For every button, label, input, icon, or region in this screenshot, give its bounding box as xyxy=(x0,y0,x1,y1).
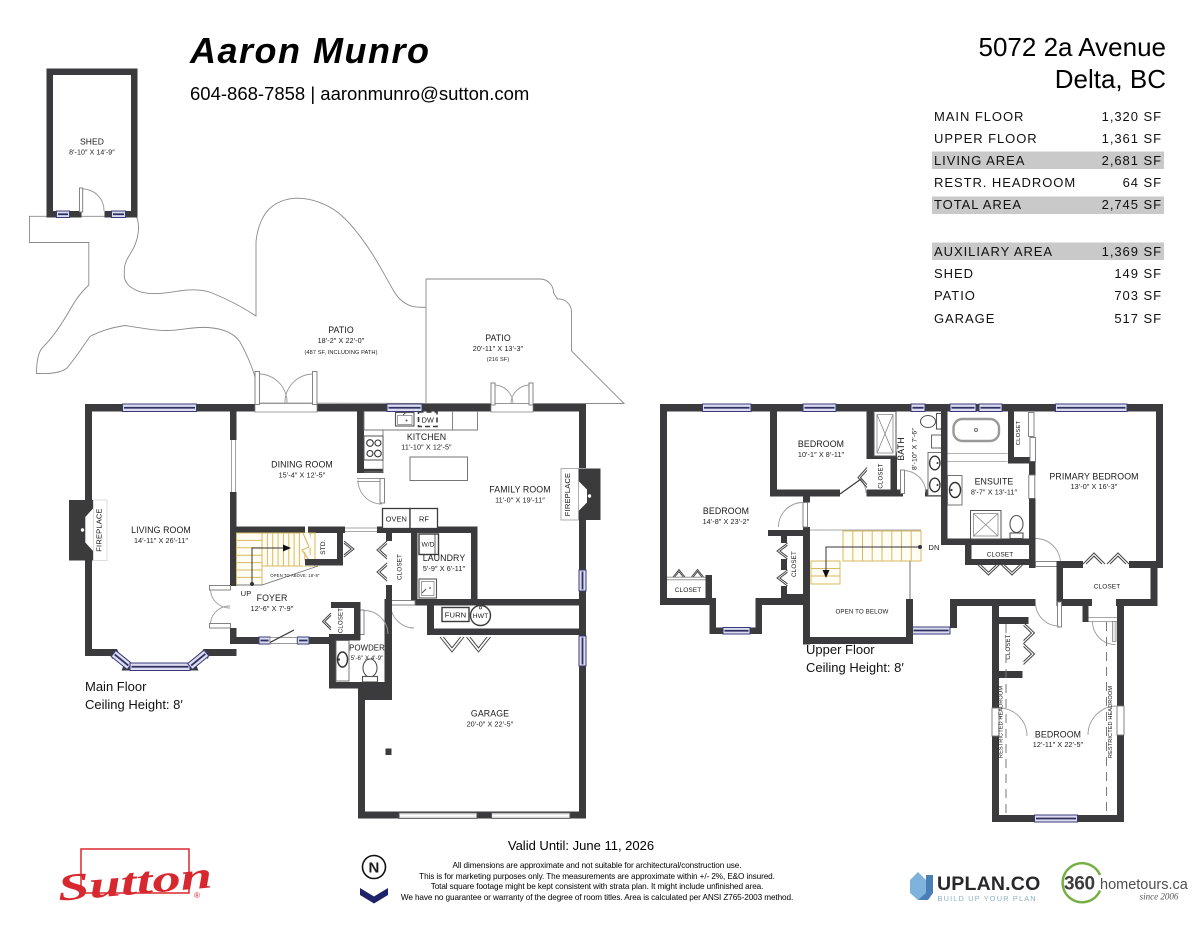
svg-text:12′-11″ X 22′-5″: 12′-11″ X 22′-5″ xyxy=(1033,740,1084,749)
svg-text:W/D: W/D xyxy=(421,542,434,549)
svg-text:CLOSET: CLOSET xyxy=(339,608,345,633)
svg-text:(487 SF, INCLUDING PATH): (487 SF, INCLUDING PATH) xyxy=(304,350,377,356)
svg-text:8′-10″ X 14′-9″: 8′-10″ X 14′-9″ xyxy=(69,150,115,157)
svg-text:18′-2″ X 22′-0″: 18′-2″ X 22′-0″ xyxy=(318,336,365,345)
svg-text:11′-10″ X 12′-5″: 11′-10″ X 12′-5″ xyxy=(401,443,452,452)
svg-text:DN: DN xyxy=(928,543,939,552)
svg-text:8′-10″ X 7′-6″: 8′-10″ X 7′-6″ xyxy=(912,428,919,470)
svg-text:®: ® xyxy=(194,891,200,900)
svg-text:15′-4″ X 12′-5″: 15′-4″ X 12′-5″ xyxy=(279,471,326,480)
svg-text:GARAGE: GARAGE xyxy=(471,709,509,719)
svg-text:PATIO: PATIO xyxy=(485,333,511,343)
svg-text:14′-8″ X 23′-2″: 14′-8″ X 23′-2″ xyxy=(703,517,750,526)
svg-text:(216 SF): (216 SF) xyxy=(487,357,510,363)
svg-text:360: 360 xyxy=(1064,874,1095,895)
svg-text:5'-6" X 4'-9": 5'-6" X 4'-9" xyxy=(351,656,384,662)
svg-text:12′-6″ X 7′-9″: 12′-6″ X 7′-9″ xyxy=(251,604,294,613)
svg-text:CLOSET: CLOSET xyxy=(1016,421,1022,446)
svg-text:ENSUITE: ENSUITE xyxy=(975,477,1014,487)
svg-text:LIVING ROOM: LIVING ROOM xyxy=(131,525,191,535)
svg-text:DW: DW xyxy=(422,416,434,425)
svg-text:Main Floor: Main Floor xyxy=(85,679,147,694)
svg-text:BUILD UP YOUR PLAN: BUILD UP YOUR PLAN xyxy=(938,894,1037,903)
svg-text:FURN: FURN xyxy=(445,611,467,620)
svg-text:CLOSET: CLOSET xyxy=(397,554,404,580)
svg-text:20′-11″ X 13′-3″: 20′-11″ X 13′-3″ xyxy=(473,344,524,353)
svg-text:RESTRICTED HEADROOM: RESTRICTED HEADROOM xyxy=(1108,686,1114,758)
svg-text:FIREPLACE: FIREPLACE xyxy=(563,473,572,516)
svg-text:HWT: HWT xyxy=(473,613,489,620)
svg-text:OPEN TO ABOVE: 18′-8″: OPEN TO ABOVE: 18′-8″ xyxy=(270,573,320,578)
svg-text:UP: UP xyxy=(241,589,252,598)
svg-text:5′-9″ X 6′-11″: 5′-9″ X 6′-11″ xyxy=(423,564,466,573)
svg-text:Ceiling Height: 8′: Ceiling Height: 8′ xyxy=(806,660,904,675)
svg-text:BEDROOM: BEDROOM xyxy=(798,439,844,449)
svg-text:14′-11″ X 26′-11″: 14′-11″ X 26′-11″ xyxy=(134,536,188,545)
svg-text:OPEN TO BELOW: OPEN TO BELOW xyxy=(836,609,889,616)
svg-text:UPLAN.CO: UPLAN.CO xyxy=(937,873,1040,895)
svg-text:FOYER: FOYER xyxy=(257,593,288,603)
svg-text:CLOSET: CLOSET xyxy=(791,551,798,577)
svg-text:CLOSET: CLOSET xyxy=(987,552,1014,559)
svg-text:Ceiling Height: 8′: Ceiling Height: 8′ xyxy=(85,697,183,712)
svg-text:CLOSET: CLOSET xyxy=(1094,584,1121,591)
svg-text:LAUNDRY: LAUNDRY xyxy=(423,553,466,563)
svg-text:RESTRICTED HEADROOM: RESTRICTED HEADROOM xyxy=(999,686,1005,758)
svg-text:11′-0″ X 19′-11″: 11′-0″ X 19′-11″ xyxy=(495,496,545,505)
svg-text:OVEN: OVEN xyxy=(386,515,407,524)
svg-text:CLOSET: CLOSET xyxy=(1006,634,1012,659)
svg-text:STD.: STD. xyxy=(320,539,327,555)
svg-text:RF: RF xyxy=(419,515,429,524)
svg-text:FIREPLACE: FIREPLACE xyxy=(95,508,104,551)
svg-text:CLOSET: CLOSET xyxy=(675,587,702,594)
svg-text:Sutton: Sutton xyxy=(56,854,214,909)
svg-text:since 2006: since 2006 xyxy=(1140,892,1179,902)
svg-text:CLOSET: CLOSET xyxy=(879,463,885,488)
svg-text:N: N xyxy=(369,860,380,877)
svg-text:20′-0″ X 22′-5″: 20′-0″ X 22′-5″ xyxy=(467,720,514,729)
svg-text:BATH: BATH xyxy=(896,437,906,461)
svg-text:PRIMARY BEDROOM: PRIMARY BEDROOM xyxy=(1049,472,1138,482)
svg-text:POWDER: POWDER xyxy=(349,644,385,653)
svg-text:BEDROOM: BEDROOM xyxy=(1035,730,1081,740)
svg-text:BEDROOM: BEDROOM xyxy=(703,506,749,516)
svg-text:13′-0″ X 16′-3″: 13′-0″ X 16′-3″ xyxy=(1071,482,1118,491)
svg-text:SHED: SHED xyxy=(80,137,104,147)
svg-text:8′-7″ X 13′-11″: 8′-7″ X 13′-11″ xyxy=(971,488,1018,497)
svg-text:10′-1″ X 8′-11″: 10′-1″ X 8′-11″ xyxy=(798,450,845,459)
svg-text:Upper Floor: Upper Floor xyxy=(806,642,875,657)
svg-text:PATIO: PATIO xyxy=(328,325,354,335)
svg-text:DINING ROOM: DINING ROOM xyxy=(271,460,333,470)
svg-text:FAMILY ROOM: FAMILY ROOM xyxy=(489,485,550,495)
svg-text:KITCHEN: KITCHEN xyxy=(407,432,446,442)
